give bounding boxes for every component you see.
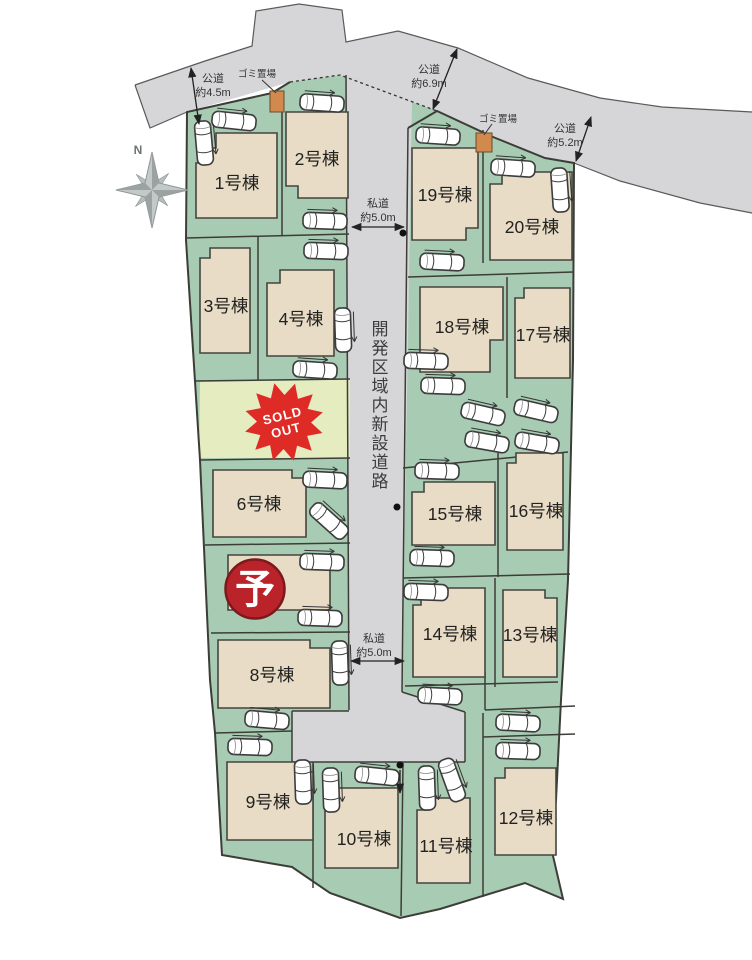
trash-label-1: ゴミ置場 xyxy=(238,68,277,80)
lot-label-10: 10号棟 xyxy=(337,829,392,849)
lot-label-17: 17号棟 xyxy=(516,325,571,345)
center-road-label: 開発区域内新設道路 xyxy=(369,320,389,491)
lot-label-2: 2号棟 xyxy=(295,149,340,169)
lot-label-3: 3号棟 xyxy=(204,296,249,316)
road-point-dot xyxy=(394,504,401,511)
public-road-69-label-2: 約6.9m xyxy=(411,76,446,90)
road-point-dot xyxy=(400,230,407,237)
lot-label-20: 20号棟 xyxy=(505,217,560,237)
trash-label-2: ゴミ置場 xyxy=(479,113,518,125)
public-road-45-label-2: 約4.5m xyxy=(195,85,230,99)
lot-label-19: 19号棟 xyxy=(418,185,473,205)
reserved-text: 予 xyxy=(235,568,275,612)
private-road-mid-label-2: 約5.0m xyxy=(356,645,391,659)
site-plan-canvas: ゴミ置場 ゴミ置場 公道 約4.5m 公道 約6.9m 公道 約5.2m 私道 … xyxy=(0,0,752,960)
lot-label-16: 16号棟 xyxy=(509,501,564,521)
lot-label-12: 12号棟 xyxy=(499,808,554,828)
lot-label-14: 14号棟 xyxy=(423,624,478,644)
compass: N xyxy=(116,143,188,228)
public-road-52-label-1: 公道 xyxy=(554,121,576,135)
public-road-69-label-1: 公道 xyxy=(418,62,440,76)
lot-label-18: 18号棟 xyxy=(435,317,490,337)
road-point-dot xyxy=(397,762,404,769)
lot-label-6: 6号棟 xyxy=(237,494,282,514)
reserved-badge: 予 xyxy=(226,560,285,619)
private-road-mid-label-1: 私道 xyxy=(363,631,385,645)
lot-label-4: 4号棟 xyxy=(279,309,324,329)
private-road-top-label-1: 私道 xyxy=(367,196,389,210)
public-road-45-label-1: 公道 xyxy=(202,71,224,85)
trash-area-box xyxy=(476,133,492,152)
lot-label-13: 13号棟 xyxy=(503,625,558,645)
site-plan: ゴミ置場 ゴミ置場 公道 約4.5m 公道 約6.9m 公道 約5.2m 私道 … xyxy=(0,0,752,960)
lot-label-1: 1号棟 xyxy=(215,173,260,193)
lot-label-15: 15号棟 xyxy=(428,504,483,524)
lot-label-9: 9号棟 xyxy=(246,792,291,812)
lot-label-8: 8号棟 xyxy=(250,665,295,685)
lot-label-11: 11号棟 xyxy=(419,836,473,856)
private-road-top-label-2: 約5.0m xyxy=(360,210,395,224)
trash-area-box xyxy=(270,91,284,112)
public-road-52-label-2: 約5.2m xyxy=(547,135,582,149)
compass-north-label: N xyxy=(134,143,143,157)
